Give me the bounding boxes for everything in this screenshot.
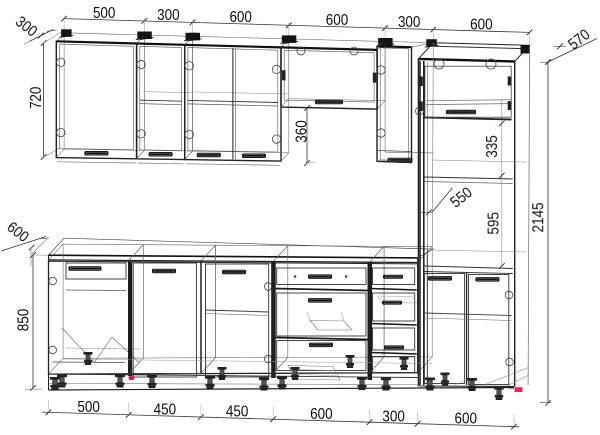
svg-text:850: 850 xyxy=(16,309,33,332)
svg-text:300: 300 xyxy=(382,408,405,425)
svg-text:720: 720 xyxy=(28,86,45,109)
svg-text:500: 500 xyxy=(93,5,116,22)
svg-text:2145: 2145 xyxy=(530,202,547,232)
svg-text:450: 450 xyxy=(154,401,177,418)
svg-text:300: 300 xyxy=(157,7,180,24)
svg-text:300: 300 xyxy=(398,14,421,31)
svg-text:600: 600 xyxy=(326,12,349,29)
svg-text:450: 450 xyxy=(226,404,249,421)
svg-text:500: 500 xyxy=(77,399,100,416)
svg-text:595: 595 xyxy=(485,212,502,235)
svg-text:600: 600 xyxy=(455,411,478,428)
svg-text:600: 600 xyxy=(470,16,493,33)
svg-text:360: 360 xyxy=(294,120,311,143)
svg-text:600: 600 xyxy=(229,9,252,26)
svg-text:600: 600 xyxy=(310,406,333,423)
svg-text:335: 335 xyxy=(484,135,501,158)
